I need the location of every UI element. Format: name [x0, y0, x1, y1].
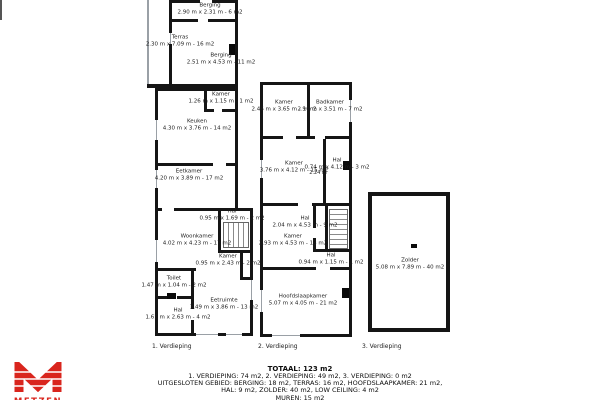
wall-segment — [204, 109, 214, 112]
window — [156, 240, 157, 262]
window — [196, 334, 218, 335]
wall-segment — [208, 19, 235, 22]
wall-segment — [226, 163, 238, 166]
room-label-kamer-narrow: Kamer0.95 m x 2.43 m - 2 m2 — [195, 254, 260, 269]
room-name: Badkamer — [297, 100, 362, 107]
room-dims: 1.47 m x 1.04 m - 2 m2 — [141, 283, 206, 290]
wall-segment — [296, 136, 315, 139]
room-name: Woonkamer — [163, 234, 232, 241]
summary-line-4: MUREN: 15 m2 — [0, 395, 600, 400]
room-label-berging-2: Berging2.51 m x 4.53 m - 11 m2 — [187, 53, 256, 68]
room-label-zolder: Zolder5.08 m x 7.89 m - 40 m2 — [376, 258, 445, 273]
door-marker — [342, 288, 349, 298]
wall-segment — [155, 163, 213, 166]
room-dims: 0.94 m x 1.15 m - 1 m2 — [298, 260, 363, 267]
room-name: Berging — [187, 53, 256, 60]
room-dims: 4.20 m x 3.89 m - 17 m2 — [155, 176, 224, 183]
room-dims: 5.08 m x 7.89 m - 40 m2 — [376, 265, 445, 272]
wall-segment — [218, 250, 253, 253]
room-label-keuken: Keuken4.30 m x 3.76 m - 14 m2 — [163, 119, 232, 134]
room-dims: 2.90 m x 2.31 m - 6 m2 — [177, 10, 242, 17]
wall-segment — [349, 85, 352, 100]
room-dims: 1.26 m x 1.15 m - 1 m2 — [188, 99, 253, 106]
door-marker — [167, 293, 176, 299]
room-dims: 4.02 m x 4.23 m - 17 m2 — [163, 241, 232, 248]
room-dims: 0.95 m x 1.69 m - 2 m2 — [199, 216, 264, 223]
window — [261, 290, 262, 312]
room-name: Kamer — [195, 254, 260, 261]
wall-segment — [349, 122, 352, 337]
floor-plan-3: Zolder5.08 m x 7.89 m - 40 m2 — [0, 0, 600, 19]
wall-segment — [368, 192, 372, 332]
room-name: Hal — [298, 253, 363, 260]
wall-segment — [325, 136, 352, 139]
wall-segment — [446, 192, 450, 332]
room-name: Berging — [177, 3, 242, 10]
wall-segment — [260, 82, 352, 85]
caption-floor-1: 1. Verdieping — [152, 343, 192, 350]
room-dims: 2.51 m x 4.53 m - 11 m2 — [187, 60, 256, 67]
window — [156, 120, 157, 140]
room-dims: 2.04 m x 4.53 m - 9 m2 — [272, 223, 337, 230]
room-label-kamer-lower: Kamer2.93 m x 4.53 m - 13 m2 — [259, 234, 328, 249]
room-name: Eetruimte — [190, 298, 259, 305]
room-label-hoofdslaapkamer: Hoofdslaapkamer5.07 m x 4.05 m - 21 m2 — [269, 294, 338, 309]
wall-segment — [222, 109, 238, 112]
window — [272, 335, 300, 336]
room-name: Eetkamer — [155, 169, 224, 176]
room-dims: 0.95 m x 2.43 m - 2 m2 — [195, 261, 260, 268]
wall-segment — [312, 203, 352, 206]
room-dims: 1.61 m x 2.63 m - 4 m2 — [145, 315, 210, 322]
room-label-hal-stairs: Hal0.95 m x 1.69 m - 2 m2 — [199, 209, 264, 224]
room-label-hal-small: Hal0.94 m x 1.15 m - 1 m2 — [298, 253, 363, 268]
wall-segment — [155, 211, 158, 240]
floorplan-page: Berging2.90 m x 2.31 m - 6 m2 Terras2.30… — [0, 0, 600, 400]
room-name: Hal — [199, 209, 264, 216]
room-label-eetkamer: Eetkamer4.20 m x 3.89 m - 17 m2 — [155, 169, 224, 184]
room-name: Hal — [145, 308, 210, 315]
wall-segment — [260, 136, 283, 139]
wall-segment — [242, 333, 253, 336]
area-summary: TOTAAL: 123 m2 1. VERDIEPING: 74 m2, 2. … — [0, 365, 600, 400]
room-name: Hal — [272, 216, 337, 223]
room-name: Kamer — [188, 92, 253, 99]
wall-segment — [155, 296, 167, 299]
room-dims: 2.93 m x 4.53 m - 13 m2 — [259, 241, 328, 248]
room-dims: 2.30 m x 7.09 m - 16 m2 — [146, 42, 215, 49]
logo-m-icon — [14, 362, 62, 392]
wall-segment — [313, 249, 352, 252]
room-label-toilet: Toilet1.47 m x 1.04 m - 2 m2 — [141, 276, 206, 291]
stairs — [0, 0, 2, 20]
wall-segment — [300, 334, 352, 337]
room-name: Keuken — [163, 119, 232, 126]
room-name: Hoofdslaapkamer — [269, 294, 338, 301]
wall-segment — [218, 333, 226, 336]
wall-segment — [240, 277, 253, 280]
wall-segment — [330, 267, 352, 270]
wall-segment — [235, 88, 238, 211]
room-label-woonkamer: Woonkamer4.02 m x 4.23 m - 17 m2 — [163, 234, 232, 249]
room-label-hal-mid: Hal2.04 m x 4.53 m - 9 m2 — [272, 216, 337, 231]
wall-segment — [260, 334, 272, 337]
wall-segment — [155, 268, 196, 271]
wall-segment — [260, 85, 263, 160]
room-label-badkamer: Badkamer2.10 m x 3.51 m - 7 m2 — [297, 100, 362, 115]
room-name: Zolder — [376, 258, 445, 265]
caption-floor-2: 2. Verdieping — [258, 343, 298, 350]
window — [226, 334, 242, 335]
wall-segment — [155, 333, 196, 336]
room-label-berging-1: Berging2.90 m x 2.31 m - 6 m2 — [177, 3, 242, 18]
room-name: Hal — [304, 158, 369, 165]
room-label-kamer-small: Kamer1.26 m x 1.15 m - 1 m2 — [188, 92, 253, 107]
room-dims: 0.74 m x 4.12 m - 3 m2 — [304, 165, 369, 172]
room-name: Kamer — [259, 234, 328, 241]
room-name: Terras — [146, 35, 215, 42]
room-dims: 5.07 m x 4.05 m - 21 m2 — [269, 301, 338, 308]
wall-segment — [260, 267, 316, 270]
wall-segment — [368, 328, 450, 332]
wall-segment — [155, 91, 158, 120]
wall-segment — [155, 88, 238, 91]
caption-floor-3: 3. Verdieping — [362, 343, 402, 350]
room-label-hal-bottom: Hal1.61 m x 2.63 m - 4 m2 — [145, 308, 210, 323]
wall-segment — [155, 262, 158, 336]
wall-segment — [260, 203, 298, 206]
wall-segment — [368, 192, 450, 196]
room-label-terras: Terras2.30 m x 7.09 m - 16 m2 — [146, 35, 215, 50]
stairs-landing-marker — [411, 244, 417, 248]
wall-segment — [169, 0, 172, 33]
logo: METZEN — [10, 362, 66, 400]
room-dims: 4.30 m x 3.76 m - 14 m2 — [163, 126, 232, 133]
room-dims: 2.10 m x 3.51 m - 7 m2 — [297, 107, 362, 114]
wall-segment — [172, 19, 198, 22]
wall-segment — [169, 44, 172, 85]
room-label-hal-corridor: Hal0.74 m x 4.12 m - 3 m2 — [304, 158, 369, 173]
room-name: Toilet — [141, 276, 206, 283]
